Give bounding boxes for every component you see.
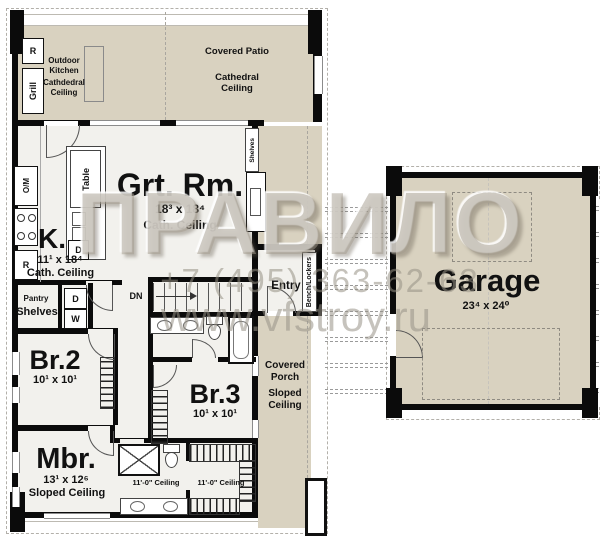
side-roof-edge-dashed-line bbox=[307, 126, 308, 244]
mbr-window-2 bbox=[12, 487, 20, 507]
kitchen-ceiling-label: Cath. Ceiling bbox=[23, 267, 98, 280]
patio-eave-line bbox=[12, 14, 322, 15]
kitchen-dims-label: 11¹ x 18⁴ bbox=[25, 254, 95, 267]
great-room-label: Grt. Rm. bbox=[105, 166, 255, 204]
master-closet-ceiling-label: 11'-0" Ceiling bbox=[190, 478, 252, 487]
covered-patio-ceiling-label: Cathedral Ceiling bbox=[203, 72, 271, 95]
garage-side-door-opening bbox=[390, 314, 396, 356]
master-bath-ceiling-label: 11'-0" Ceiling bbox=[124, 478, 188, 487]
master-bedroom-label: Mbr. bbox=[26, 442, 106, 477]
cooktop-burner-icon bbox=[28, 214, 36, 222]
covered-patio-label: Covered Patio bbox=[205, 46, 269, 57]
stairs-direction-line bbox=[156, 296, 190, 297]
entry-north-wall bbox=[252, 244, 322, 250]
bottom-siding-line bbox=[12, 521, 258, 522]
garage-storage-dashed-area-bottom bbox=[422, 328, 560, 400]
greatroom-shelves-label: Shelves bbox=[249, 138, 256, 163]
garage-storage-dashed-area-top bbox=[452, 192, 532, 262]
garage-pillar-se bbox=[582, 388, 598, 418]
hallbath-bathtub bbox=[228, 316, 254, 364]
greatroom-slider-window-1 bbox=[90, 120, 160, 126]
covered-porch-ceiling-label: Sloped Ceiling bbox=[263, 388, 307, 412]
outdoor-fridge-label: R bbox=[30, 46, 37, 56]
bedroom2-dims-label: 10¹ x 10¹ bbox=[22, 374, 88, 387]
porch-roof-edge-dashed-line bbox=[307, 316, 308, 478]
covered-porch-floor bbox=[258, 316, 311, 528]
bedroom2-closet-shelves bbox=[100, 357, 115, 409]
sink-icon bbox=[157, 320, 172, 331]
side-covered-floor bbox=[258, 126, 322, 244]
great-room-ceiling-label: Cath. Ceiling bbox=[130, 218, 230, 232]
cooktop-burner-icon bbox=[17, 232, 25, 240]
stairs-arrow-icon bbox=[190, 292, 197, 300]
masterbath-door-opening bbox=[120, 439, 144, 443]
sink-icon bbox=[130, 501, 145, 512]
covered-porch-label: Covered Porch bbox=[261, 360, 309, 384]
stairs-dn-label: DN bbox=[124, 291, 148, 302]
sink-icon bbox=[183, 320, 198, 331]
great-room-dims-label: 18³ x 18⁴ bbox=[130, 202, 230, 216]
pantry-label: Pantry bbox=[15, 294, 57, 304]
stairs-north-wall bbox=[148, 277, 256, 282]
garage-dims-label: 23⁴ x 24⁰ bbox=[446, 300, 526, 313]
garage-pillar-ne bbox=[582, 166, 598, 196]
master-shower bbox=[118, 444, 160, 476]
garage-label: Garage bbox=[417, 262, 557, 299]
master-closet-shelves-bottom bbox=[189, 498, 240, 515]
east-wall-window-2 bbox=[252, 420, 259, 438]
pantry-shelves-label: Shelves bbox=[11, 306, 63, 319]
patio-ridge-dashed-line bbox=[165, 12, 166, 120]
hallbath-vanity bbox=[150, 317, 204, 334]
patio-right-window bbox=[314, 56, 323, 94]
island-table: Table bbox=[70, 150, 101, 208]
greatroom-slider-window-2 bbox=[176, 120, 248, 126]
bathtub-basin-icon bbox=[233, 321, 249, 359]
island-table-label: Table bbox=[81, 168, 91, 191]
garage-east-wall bbox=[590, 172, 596, 410]
bedroom2-window-1 bbox=[12, 352, 20, 375]
island-sink-2 bbox=[72, 227, 86, 241]
mbr-window-1 bbox=[12, 452, 20, 473]
garage-pillar-sw bbox=[386, 388, 402, 418]
breezeway-paving-lines bbox=[323, 196, 390, 406]
sink-icon bbox=[163, 501, 178, 512]
oven-microwave-box: O/M bbox=[14, 166, 38, 206]
garage-west-wall bbox=[390, 172, 396, 410]
master-vanity bbox=[120, 498, 188, 515]
bedroom3-closet-shelves bbox=[151, 390, 168, 444]
master-bedroom-ceiling-label: Sloped Ceiling bbox=[22, 487, 112, 500]
island-sink-1 bbox=[72, 212, 86, 226]
oven-microwave-label: O/M bbox=[22, 178, 31, 193]
master-bedroom-dims-label: 13¹ x 12⁶ bbox=[28, 474, 104, 487]
dryer-label: D bbox=[72, 294, 79, 304]
mbr-south-window bbox=[44, 513, 110, 519]
garage-pillar-nw bbox=[386, 166, 402, 196]
floor-plan: DN R Grill O/M R Table D D W Shelves bbox=[0, 0, 600, 545]
stairs-treads bbox=[153, 283, 253, 311]
garage-north-wall bbox=[390, 172, 596, 178]
bedroom3-label: Br.3 bbox=[180, 378, 250, 410]
washer-label: W bbox=[71, 314, 80, 324]
bedroom2-label: Br.2 bbox=[21, 344, 89, 376]
washer-box: W bbox=[64, 309, 87, 329]
bedroom3-dims-label: 10¹ x 10¹ bbox=[182, 408, 248, 421]
cooktop-burner-icon bbox=[17, 214, 25, 222]
bedroom2-window-2 bbox=[12, 387, 20, 403]
garage-south-wall bbox=[390, 404, 596, 410]
outdoor-kitchen-label: Outdoor Kitchen bbox=[36, 56, 92, 75]
outdoor-kitchen-ceiling-label: Cathdedral Ceiling bbox=[34, 78, 94, 97]
entry-label: Entry bbox=[262, 280, 310, 294]
dryer-box: D bbox=[64, 288, 87, 309]
porch-column bbox=[305, 478, 327, 536]
kitchen-label: K. bbox=[34, 222, 70, 256]
